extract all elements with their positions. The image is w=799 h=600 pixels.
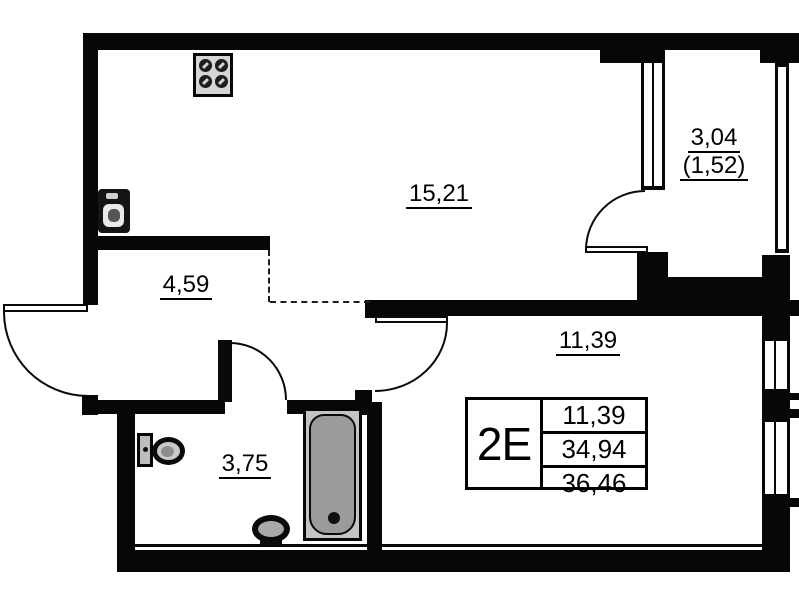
bathtub-inner: [309, 414, 356, 535]
stove-icon: [193, 53, 233, 97]
wall-left: [83, 50, 98, 305]
apartment-info-box: 2E 11,39 34,94 36,46: [465, 397, 648, 490]
floor-plan: 15,21 4,59 3,75 11,39 3,04 (1,52) 2E 11,…: [0, 0, 799, 600]
burner-icon: [215, 75, 228, 88]
bathroom-door-arc: [230, 342, 287, 400]
bedroom-door-leaf: [375, 316, 448, 323]
wall-balcony-window-head: [600, 48, 665, 63]
sink-drain: [108, 209, 120, 222]
entrance-door-leaf: [3, 304, 88, 312]
living-area-value: 11,39: [543, 400, 645, 434]
balcony-door-arc: [585, 190, 645, 250]
wall-top: [83, 33, 799, 50]
bedroom-window-1: [762, 337, 790, 393]
washbasin-bowl: [252, 515, 290, 543]
burner-icon: [199, 75, 212, 88]
wall-bottom: [117, 550, 790, 572]
balcony-exterior-window: [775, 63, 789, 253]
toilet-icon: [137, 433, 153, 467]
burner-icon: [199, 59, 212, 72]
glazing-line: [774, 422, 776, 494]
apartment-type-label: 2E: [468, 400, 543, 487]
balcony-partition-window: [641, 63, 665, 190]
wall-balcony-door-block: [637, 252, 668, 302]
zone-divider-dashed-horizontal: [270, 301, 370, 303]
kitchen-living-area-label: 15,21: [398, 181, 480, 209]
wall-bedroom-top: [368, 300, 799, 316]
total-area-value: 36,46: [543, 468, 645, 499]
burner-icon: [215, 59, 228, 72]
bedroom-window-2: [762, 418, 790, 498]
bathtub-icon: [303, 408, 362, 541]
wall-hall-kitchen-divider: [98, 236, 270, 250]
wall-bathroom-top-left: [82, 400, 225, 414]
toilet-bowl: [152, 437, 185, 465]
wall-right-upper: [762, 255, 790, 337]
bedroom-door-arc: [375, 323, 448, 392]
wall-entry-stub: [82, 395, 98, 415]
apartment-areas: 11,39 34,94 36,46: [543, 400, 645, 487]
wall-right-lower: [762, 507, 790, 550]
wall-right-lower-nub: [762, 498, 799, 507]
bedroom-area-label: 11,39: [548, 328, 628, 356]
sink-detail: [106, 193, 118, 199]
glazing-line: [774, 341, 776, 389]
washbasin-icon: [252, 515, 290, 545]
hallway-area-label: 4,59: [150, 272, 222, 300]
bathtub-drain: [328, 512, 340, 524]
wall-corner-top-right: [760, 50, 799, 63]
balcony-coef-area-label: (1,52): [668, 153, 760, 181]
balcony-area-label: 3,04: [674, 125, 754, 153]
area-without-balcony-value: 34,94: [543, 434, 645, 468]
wall-bottom-line: [117, 544, 790, 547]
entrance-door-arc: [3, 312, 88, 397]
wall-right-mid-notch: [790, 400, 799, 409]
zone-divider-dashed-vertical: [268, 250, 270, 302]
glazing-line: [652, 63, 654, 186]
kitchen-sink-icon: [98, 189, 130, 233]
bathroom-area-label: 3,75: [210, 451, 280, 479]
